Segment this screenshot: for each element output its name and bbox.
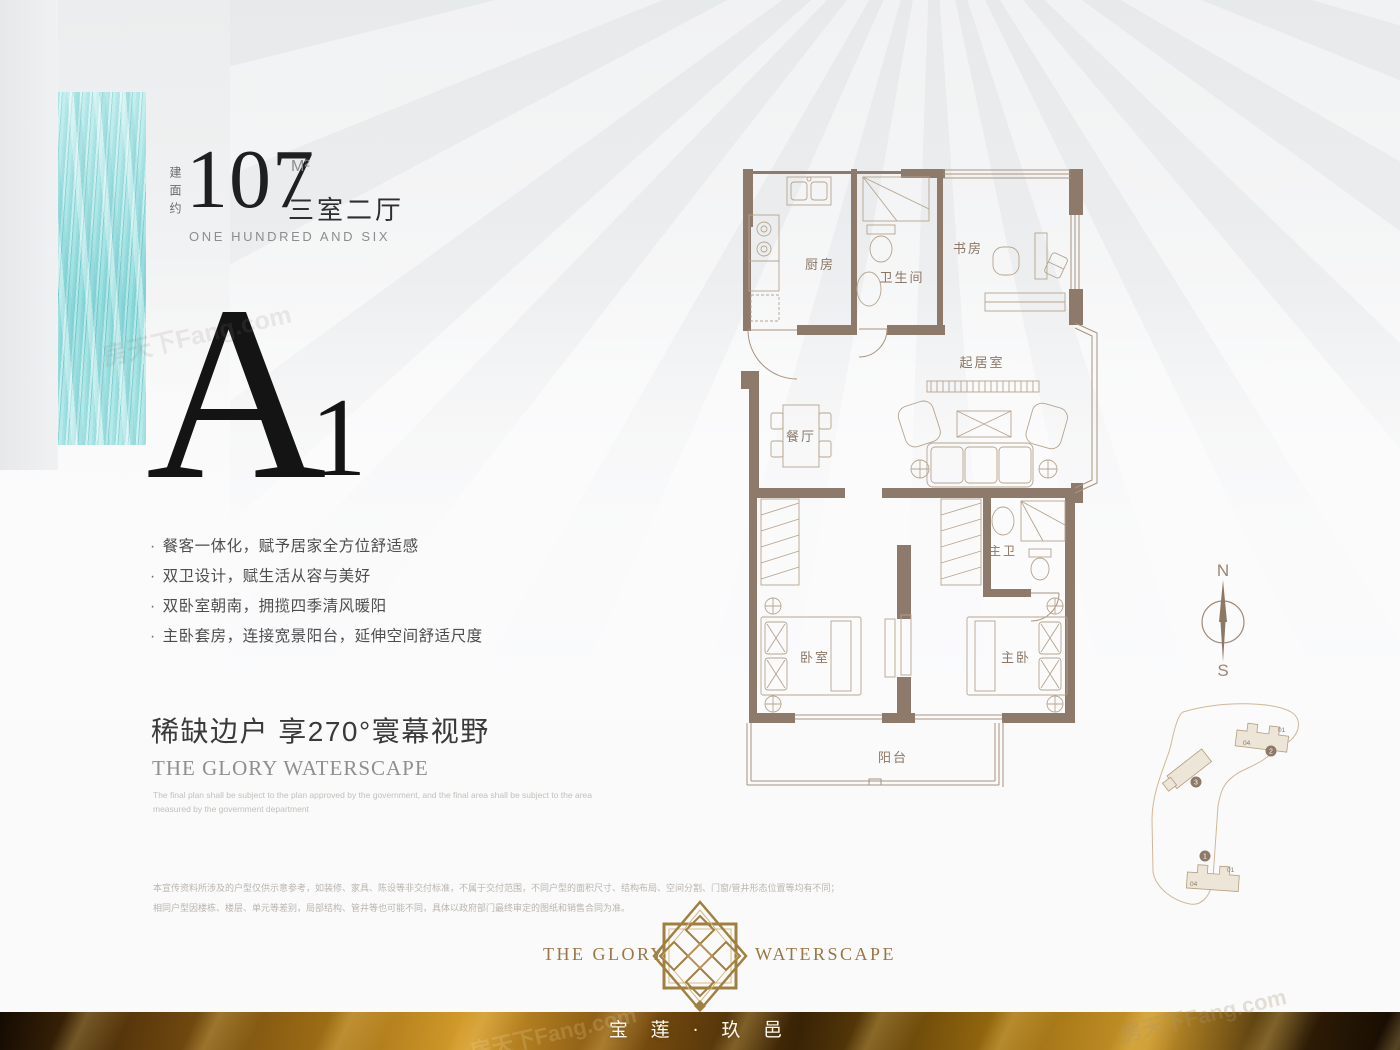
room-label-study: 书房: [953, 241, 983, 256]
unit-code-letter: A: [146, 296, 327, 491]
building-2-unit-01: 01: [1278, 727, 1286, 734]
bullet-icon: ·: [150, 628, 156, 645]
room-label-bathroom: 卫生间: [879, 270, 924, 285]
building-1-unit-04: 04: [1190, 881, 1198, 888]
brand-emblem-icon: [646, 900, 754, 1012]
room-label-living: 起居室: [959, 355, 1004, 370]
building-3-number: 3: [1194, 780, 1198, 787]
unit-code: A 1: [146, 296, 367, 491]
room-label-kitchen: 厨房: [805, 257, 835, 272]
furniture: [749, 177, 1070, 712]
floorplan-drawing: 厨房 卫生间 书房 起居室 餐厅 主卫 卧室 主卧 阳台: [735, 165, 1135, 805]
compass-south-label: S: [1217, 661, 1228, 678]
brand-subtitle: THE GLORY WATERSCAPE: [152, 756, 429, 781]
building-2-number: 2: [1269, 749, 1273, 756]
feature-item: ·双卫设计，赋生活从容与美好: [150, 562, 483, 592]
room-label-master-bedroom: 主卧: [1001, 650, 1031, 665]
project-name-bar: 宝 莲 · 玖 邑: [0, 1012, 1400, 1050]
windows: [747, 170, 1097, 787]
brand-disclaimer-line2: measured by the government department: [153, 802, 592, 816]
poster-canvas: 建面约 107 M² 三室二厅 ONE HUNDRED AND SIX A 1 …: [0, 0, 1400, 1050]
background-left-band: [0, 0, 58, 470]
area-type: 三室二厅: [288, 190, 404, 227]
headline: 稀缺边户 享270°寰幕视野: [151, 710, 490, 750]
room-label-dining: 餐厅: [786, 429, 816, 444]
area-english: ONE HUNDRED AND SIX: [189, 229, 390, 244]
area-unit: M²: [291, 158, 310, 176]
building-1-number: 1: [1203, 854, 1207, 861]
area-prefix: 建面约: [167, 166, 183, 220]
compass-north-label: N: [1217, 561, 1229, 580]
building-1-unit-01: 01: [1227, 867, 1235, 874]
feature-text: 餐客一体化，赋予居家全方位舒适感: [163, 538, 419, 555]
teal-texture-image: [58, 92, 146, 445]
feature-text: 双卧室朝南，拥揽四季清风暖阳: [163, 598, 387, 615]
brand-logo-right: WATERSCAPE: [755, 944, 896, 965]
features-list: ·餐客一体化，赋予居家全方位舒适感 ·双卫设计，赋生活从容与美好 ·双卧室朝南，…: [150, 532, 483, 652]
project-name: 宝 莲 · 玖 邑: [0, 1012, 1400, 1050]
compass-needle-tail: [1221, 622, 1226, 662]
room-label-bedroom: 卧室: [800, 650, 830, 665]
bullet-icon: ·: [150, 598, 156, 615]
siteplan-map: 04 01 2 3 1 01 04: [1143, 698, 1371, 920]
feature-item: ·餐客一体化，赋予居家全方位舒适感: [150, 532, 483, 562]
cn-disclaimer-line1: 本宣传资料所涉及的户型仅供示意参考，如装修、家具、陈设等非交付标准，不属于交付范…: [153, 878, 840, 898]
siteplan-buildings: 04 01 2 3 1 01 04: [1161, 722, 1290, 892]
building-3: [1161, 749, 1212, 794]
room-label-master-bath: 主卫: [989, 544, 1017, 558]
room-label-balcony: 阳台: [878, 750, 908, 765]
brand-disclaimer-line1: The final plan shall be subject to the p…: [153, 788, 592, 802]
feature-item: ·双卧室朝南，拥揽四季清风暖阳: [150, 592, 483, 622]
unit-code-index: 1: [311, 388, 367, 489]
bullet-icon: ·: [150, 568, 156, 585]
building-2-unit-04: 04: [1243, 740, 1251, 747]
feature-item: ·主卧套房，连接宽景阳台，延伸空间舒适尺度: [150, 622, 483, 652]
brand-disclaimer-en: The final plan shall be subject to the p…: [153, 788, 592, 816]
compass: N S: [1192, 560, 1254, 678]
feature-text: 主卧套房，连接宽景阳台，延伸空间舒适尺度: [163, 628, 483, 645]
emblem-pattern: [654, 902, 746, 1012]
bullet-icon: ·: [150, 538, 156, 555]
feature-text: 双卫设计，赋生活从容与美好: [163, 568, 371, 585]
